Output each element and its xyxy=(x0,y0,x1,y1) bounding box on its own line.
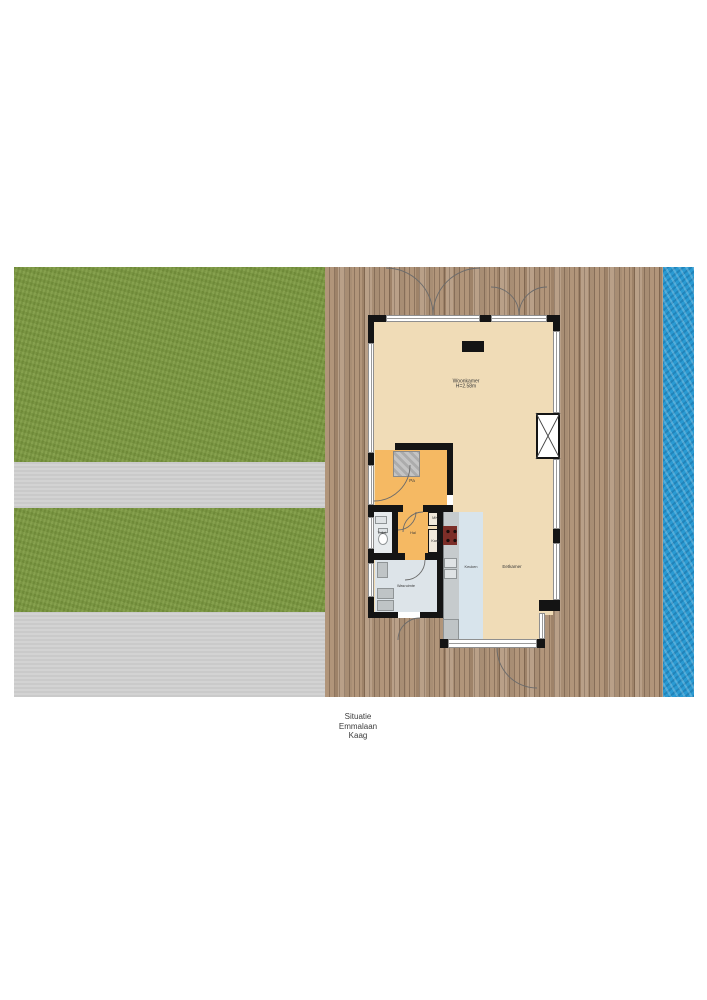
room-label-keuken: Keuken xyxy=(465,565,478,569)
window xyxy=(368,517,374,549)
room-label-pa: Pa xyxy=(409,479,415,484)
door-opening xyxy=(398,612,420,618)
wall-segment xyxy=(370,553,405,560)
window xyxy=(539,613,545,639)
wall-segment xyxy=(368,315,374,343)
laundry-cabinet xyxy=(377,562,388,578)
wall-segment xyxy=(370,505,403,512)
sink-icon xyxy=(444,569,457,579)
room-label-kast: Kast xyxy=(431,539,439,543)
wall-segment xyxy=(423,505,453,512)
stove-icon xyxy=(443,526,457,545)
washbasin-icon xyxy=(375,516,387,524)
wall-segment xyxy=(539,600,560,611)
room-label-hal: Hal xyxy=(410,531,416,535)
window xyxy=(368,563,374,597)
kitchen-appliance xyxy=(443,619,459,641)
wall-segment xyxy=(392,512,398,558)
garden-path-upper xyxy=(14,462,325,508)
site-plan-area: Woonkamer H=2.58m Pa Toilet Hal MK Kast … xyxy=(14,267,694,697)
window xyxy=(553,543,560,600)
door-opening xyxy=(403,505,423,512)
window xyxy=(368,465,374,505)
caption-line-3: Kaag xyxy=(298,731,418,741)
room-label-woonkamer: Woonkamer H=2.58m xyxy=(453,379,480,389)
window xyxy=(368,343,374,453)
wall-segment xyxy=(537,639,545,648)
wall-segment xyxy=(437,512,443,618)
wall-segment xyxy=(440,639,448,648)
room-label-mk: MK xyxy=(432,516,438,520)
stairs-icon xyxy=(393,451,420,477)
caption-line-2: Emmalaan xyxy=(298,722,418,732)
room-label-eetkamer: Eetkamer xyxy=(502,565,521,570)
room-label-toilet: Toilet xyxy=(378,531,387,535)
wall-segment xyxy=(368,453,374,465)
door-opening xyxy=(405,553,425,560)
window xyxy=(491,315,547,322)
plan-caption: Situatie Emmalaan Kaag xyxy=(298,712,418,741)
wall-segment xyxy=(553,529,560,543)
room-label-wasruimte: Wasruimte xyxy=(397,584,415,588)
window-sliding-door xyxy=(448,639,537,648)
garden-path-lower xyxy=(14,612,325,697)
room-label-woonkamer-sub: H=2.58m xyxy=(456,384,476,390)
shaft-box xyxy=(536,413,560,459)
water-area xyxy=(663,267,694,697)
washing-machine-icon xyxy=(377,588,394,599)
washing-machine-icon xyxy=(377,600,394,611)
sink-icon xyxy=(444,558,457,568)
window xyxy=(553,331,560,413)
window xyxy=(386,315,480,322)
wall-segment xyxy=(373,612,398,618)
situatie-floor-plan: Woonkamer H=2.58m Pa Toilet Hal MK Kast … xyxy=(0,0,707,1000)
window xyxy=(553,459,560,529)
fireplace-block xyxy=(462,341,484,352)
room-keuken-floor xyxy=(459,512,483,642)
wall-segment xyxy=(395,443,453,450)
wall-segment xyxy=(480,315,491,322)
wall-segment xyxy=(553,315,560,331)
caption-line-1: Situatie xyxy=(298,712,418,722)
